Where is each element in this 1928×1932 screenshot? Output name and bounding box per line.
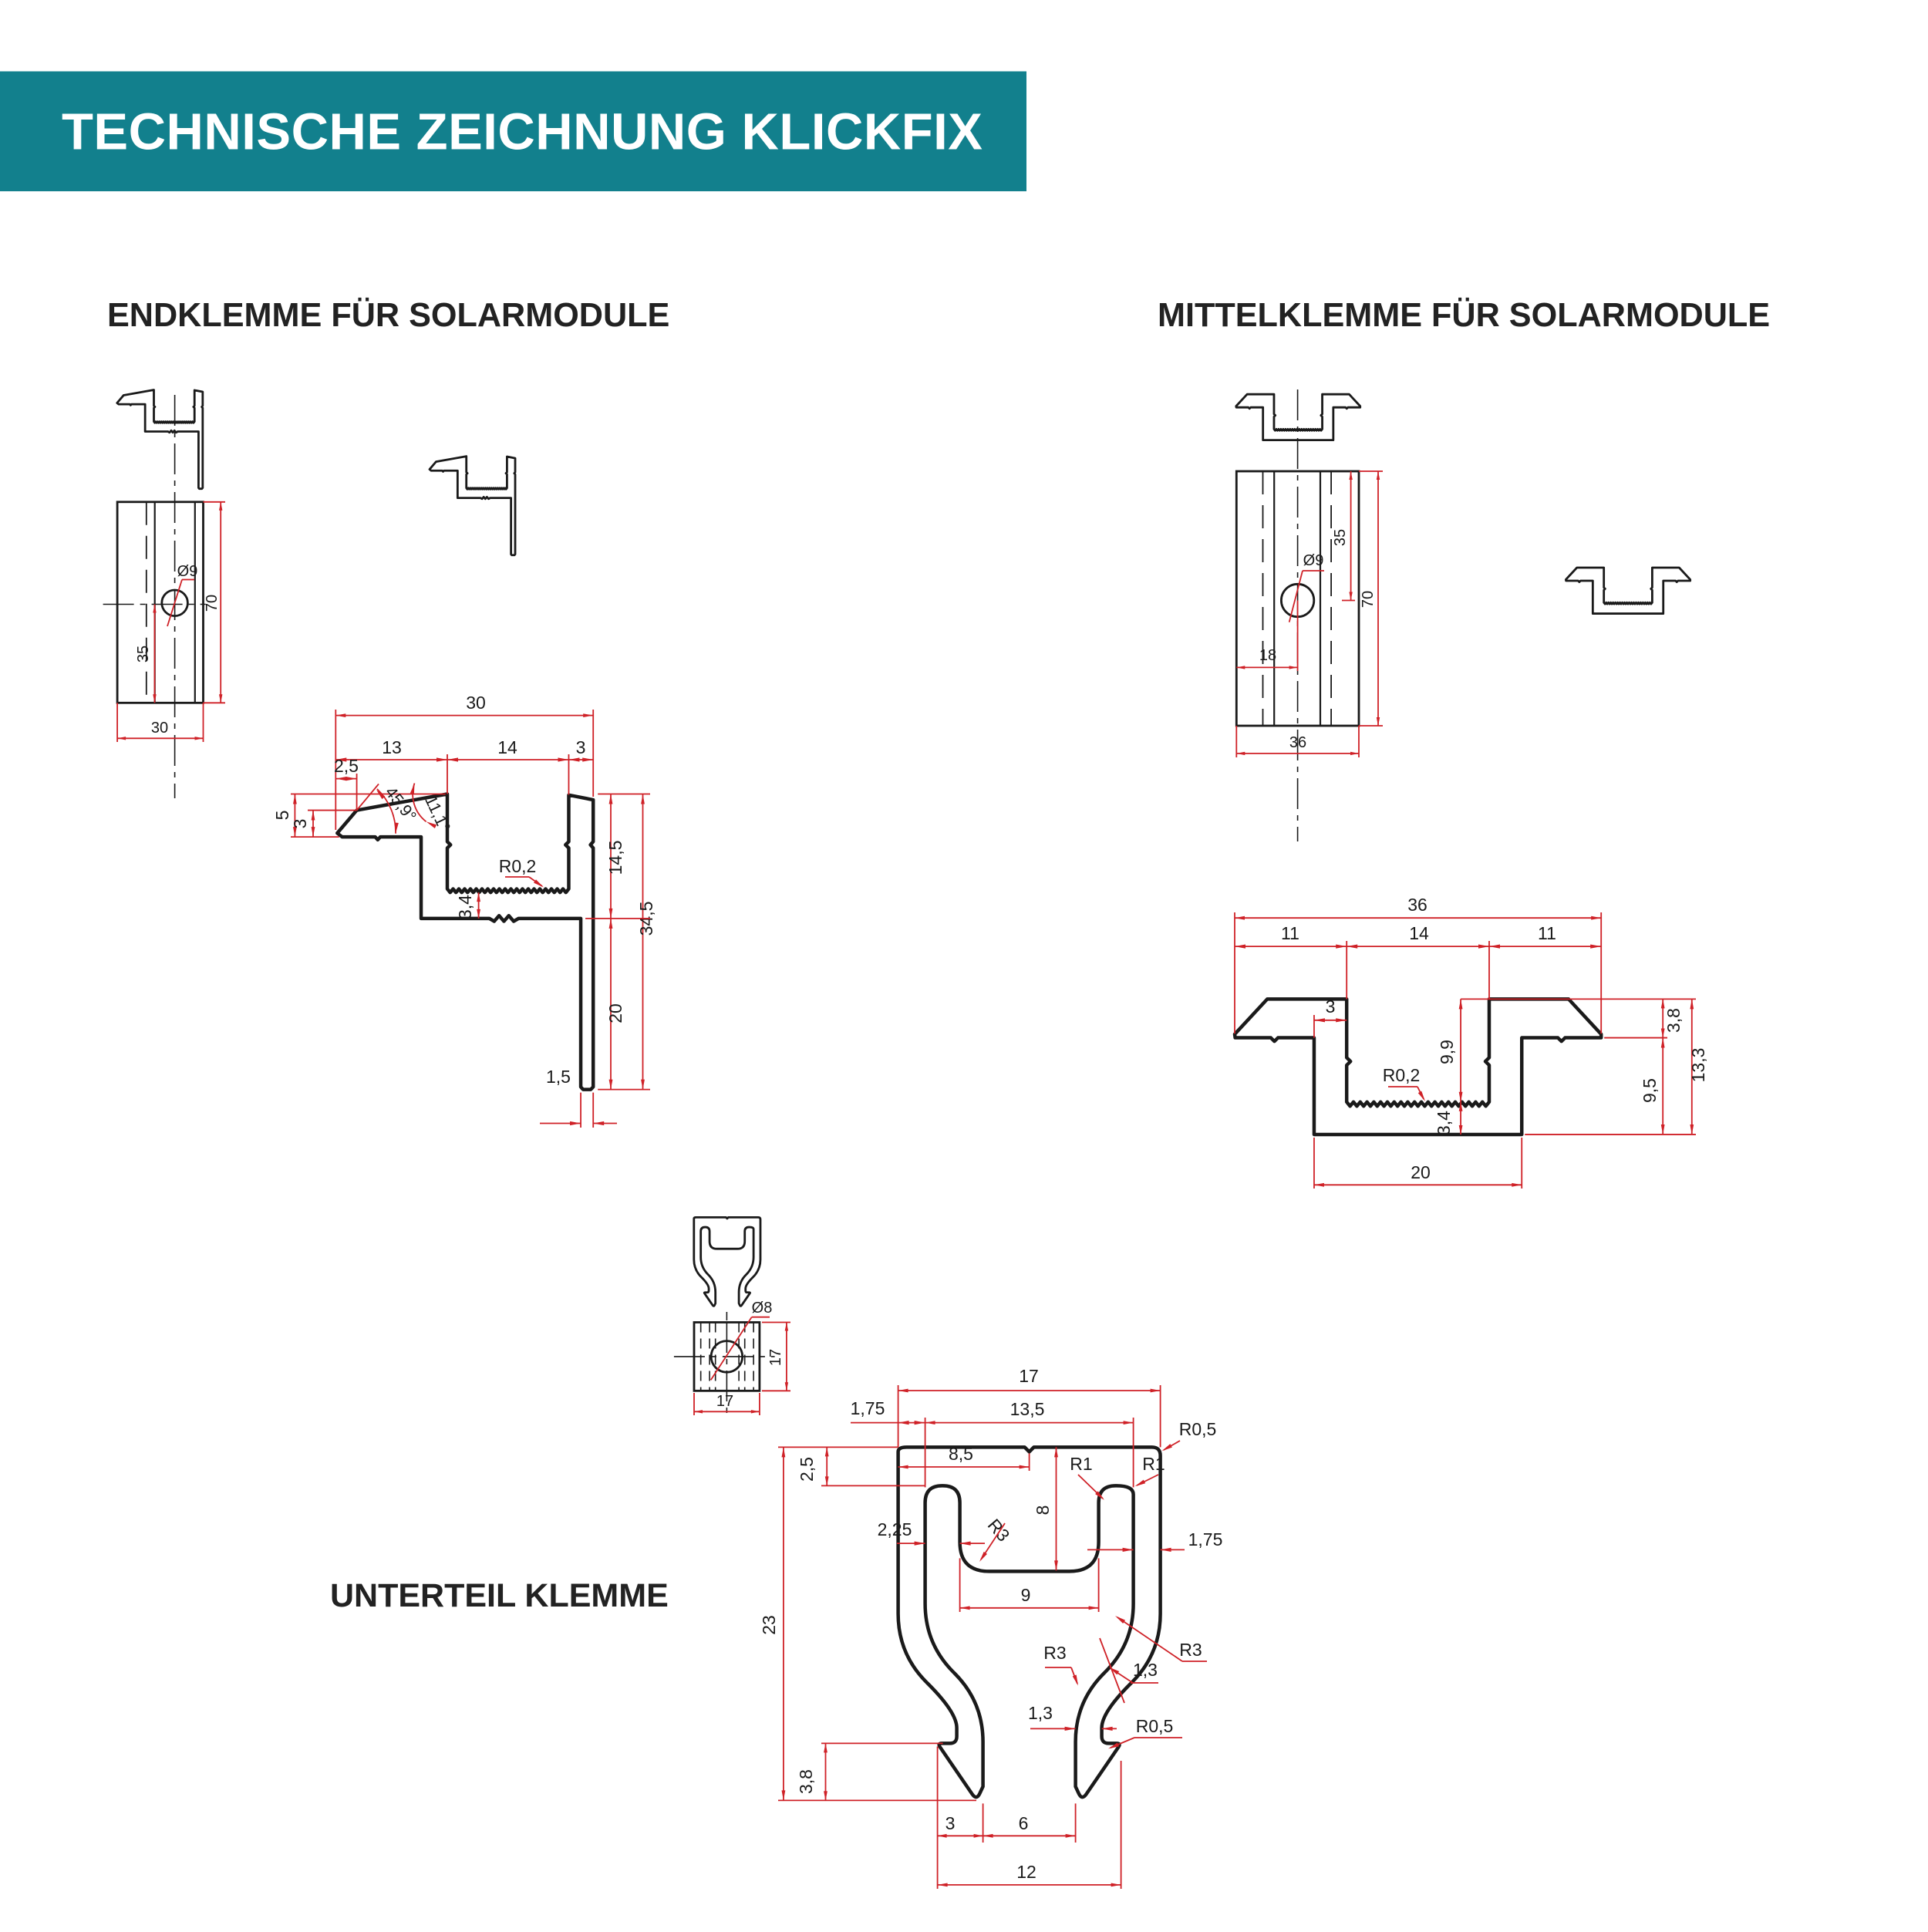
svg-text:14: 14 (1409, 923, 1429, 943)
svg-text:30: 30 (466, 693, 486, 713)
svg-text:11: 11 (1281, 923, 1299, 943)
svg-text:R3: R3 (1043, 1643, 1066, 1663)
svg-text:1,3: 1,3 (1028, 1703, 1053, 1723)
svg-text:R1: R1 (1070, 1454, 1092, 1474)
svg-text:9,9: 9,9 (1437, 1040, 1457, 1064)
svg-text:17: 17 (716, 1393, 733, 1410)
svg-text:2,5: 2,5 (797, 1457, 817, 1482)
svg-text:UNTERTEIL KLEMME: UNTERTEIL KLEMME (330, 1577, 669, 1614)
svg-text:R0,2: R0,2 (499, 856, 537, 876)
svg-text:3,4: 3,4 (455, 895, 475, 919)
svg-text:Ø8: Ø8 (752, 1300, 773, 1317)
svg-text:17: 17 (767, 1349, 784, 1366)
svg-text:20: 20 (1411, 1162, 1431, 1182)
svg-text:1,3: 1,3 (1133, 1660, 1158, 1680)
svg-text:3: 3 (576, 737, 586, 757)
svg-text:R0,5: R0,5 (1136, 1716, 1174, 1736)
svg-text:13,3: 13,3 (1688, 1048, 1708, 1083)
svg-text:R0,2: R0,2 (1383, 1065, 1421, 1085)
svg-text:2,5: 2,5 (334, 756, 359, 776)
svg-text:70: 70 (1360, 591, 1377, 608)
svg-text:30: 30 (151, 720, 168, 737)
svg-text:3: 3 (1326, 996, 1336, 1017)
svg-text:23: 23 (759, 1615, 779, 1635)
svg-text:1,75: 1,75 (1188, 1529, 1223, 1549)
svg-text:14,5: 14,5 (605, 841, 625, 875)
svg-text:2,25: 2,25 (878, 1519, 912, 1539)
svg-text:9: 9 (1021, 1585, 1031, 1605)
svg-text:3,8: 3,8 (1663, 1008, 1684, 1033)
svg-text:14: 14 (497, 737, 517, 757)
svg-text:1,5: 1,5 (546, 1067, 571, 1087)
svg-text:R3: R3 (1179, 1640, 1202, 1660)
svg-text:9,5: 9,5 (1640, 1078, 1660, 1103)
svg-text:36: 36 (1407, 895, 1427, 915)
svg-text:ENDKLEMME FÜR SOLARMODULE: ENDKLEMME FÜR SOLARMODULE (107, 297, 669, 334)
svg-text:11: 11 (1538, 923, 1556, 943)
svg-text:3: 3 (945, 1813, 956, 1833)
svg-text:35: 35 (1332, 529, 1349, 546)
svg-text:13: 13 (382, 737, 402, 757)
svg-text:18: 18 (1259, 647, 1276, 664)
svg-text:13,5: 13,5 (1010, 1399, 1045, 1419)
svg-text:3,4: 3,4 (1434, 1111, 1454, 1135)
svg-text:8: 8 (1033, 1505, 1053, 1516)
svg-text:TECHNISCHE ZEICHNUNG KLICKFIX: TECHNISCHE ZEICHNUNG KLICKFIX (62, 103, 983, 161)
svg-text:36: 36 (1289, 734, 1306, 751)
svg-text:20: 20 (605, 1003, 625, 1023)
svg-text:6: 6 (1019, 1813, 1029, 1833)
svg-text:1,75: 1,75 (851, 1398, 885, 1418)
svg-text:8,5: 8,5 (949, 1444, 973, 1464)
svg-text:70: 70 (204, 595, 221, 612)
svg-text:MITTELKLEMME FÜR SOLARMODULE: MITTELKLEMME FÜR SOLARMODULE (1158, 297, 1770, 334)
svg-text:35: 35 (135, 646, 152, 663)
svg-text:R0,5: R0,5 (1179, 1419, 1217, 1439)
svg-text:Ø9: Ø9 (177, 563, 198, 580)
svg-text:R1: R1 (1142, 1454, 1165, 1474)
svg-text:3,8: 3,8 (796, 1769, 816, 1794)
svg-text:3: 3 (290, 819, 310, 829)
svg-text:17: 17 (1019, 1366, 1039, 1386)
svg-text:5: 5 (272, 811, 292, 821)
svg-text:Ø9: Ø9 (1303, 552, 1324, 569)
svg-text:12: 12 (1016, 1862, 1036, 1882)
